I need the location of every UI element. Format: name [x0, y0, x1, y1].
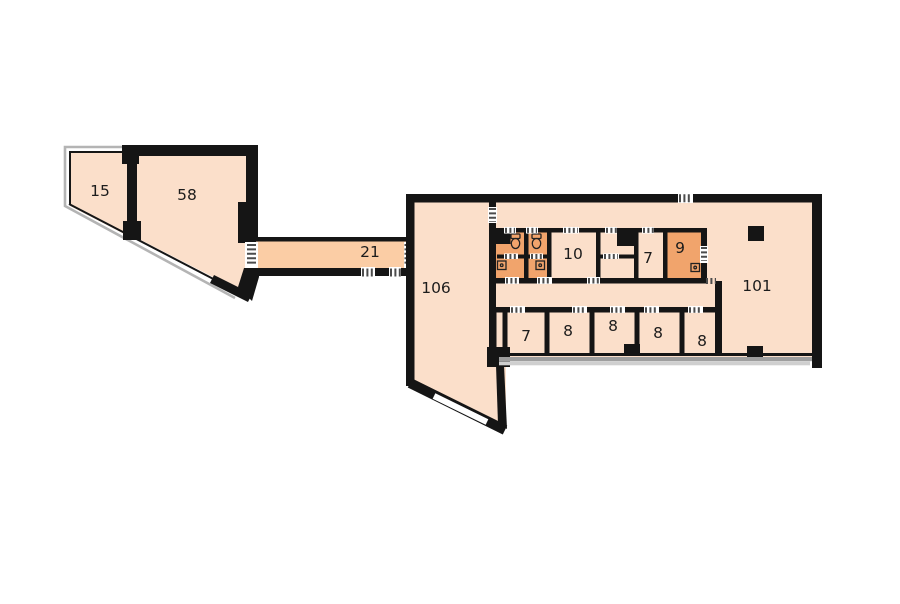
room-label-7-lower: 7: [521, 327, 531, 345]
duct: [617, 231, 634, 246]
corridor-21-area: [256, 241, 412, 268]
wall: [492, 307, 497, 349]
floor-plan-drawing: 15 58 21 106 10 7 9 101 7 8 8 8 8: [0, 0, 900, 604]
wall-pier: [238, 202, 258, 243]
wall: [715, 281, 722, 356]
door-marker: [700, 246, 708, 263]
wall: [122, 145, 258, 156]
wall: [680, 307, 685, 356]
window-band: [499, 357, 812, 361]
wall: [254, 237, 412, 242]
door-marker: [510, 306, 525, 313]
column: [123, 221, 141, 240]
door-marker: [572, 306, 587, 313]
door-marker: [526, 227, 538, 234]
door-marker: [505, 277, 519, 284]
room-label-9: 9: [675, 239, 685, 257]
door-marker: [488, 207, 497, 223]
wall: [547, 228, 552, 284]
door-marker: [603, 254, 619, 260]
door-marker: [605, 227, 617, 234]
room-label-101: 101: [742, 277, 772, 295]
door-marker: [642, 227, 654, 234]
door-marker: [245, 242, 258, 268]
window-band: [499, 362, 810, 366]
room-label-106: 106: [421, 279, 451, 297]
room-label-10: 10: [563, 245, 583, 263]
door-marker: [361, 267, 375, 277]
wall: [406, 194, 822, 203]
wall: [545, 307, 550, 356]
room-label-8-c: 8: [653, 324, 663, 342]
main-wing: [406, 193, 822, 430]
door-marker: [537, 277, 552, 284]
room-label-58: 58: [177, 186, 197, 204]
duct: [494, 232, 511, 244]
wall: [406, 194, 415, 386]
door-marker: [389, 267, 401, 277]
wall: [503, 307, 508, 349]
left-wing: [65, 145, 259, 301]
window-band: [497, 353, 812, 356]
door-marker: [530, 254, 543, 260]
door-marker: [610, 306, 625, 313]
door-marker: [504, 254, 518, 260]
wall: [590, 307, 595, 356]
door-marker: [563, 227, 579, 234]
door-marker: [504, 227, 516, 234]
room-label-8-b: 8: [608, 317, 618, 335]
wall: [663, 228, 668, 284]
room-label-7-upper: 7: [643, 249, 653, 267]
door-marker: [587, 277, 600, 284]
room-label-15: 15: [90, 182, 110, 200]
room-label-8-a: 8: [563, 322, 573, 340]
room-label-8-d: 8: [697, 332, 707, 350]
wall: [812, 194, 822, 368]
column: [748, 226, 764, 241]
door-marker: [644, 306, 659, 313]
door-marker: [688, 306, 703, 313]
floor-plan-canvas: 15 58 21 106 10 7 9 101 7 8 8 8 8: [0, 0, 900, 604]
room-label-21: 21: [360, 243, 380, 261]
corridor-21: [245, 237, 414, 277]
door-marker: [678, 193, 693, 203]
column: [122, 147, 139, 164]
